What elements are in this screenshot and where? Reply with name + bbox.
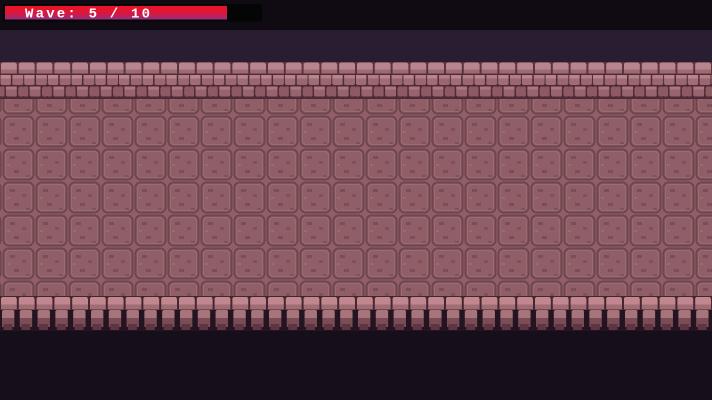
svg-text:Wave: 5 / 10: Wave: 5 / 10 bbox=[25, 6, 152, 22]
